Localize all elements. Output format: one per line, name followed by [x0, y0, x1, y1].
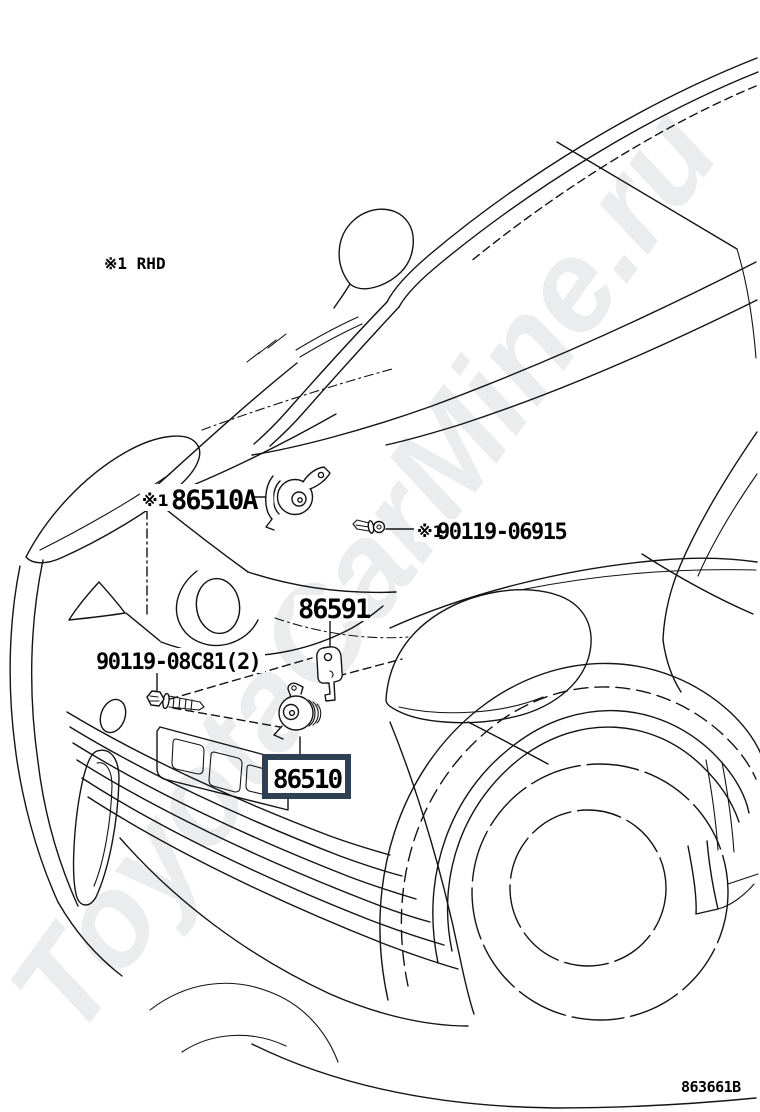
highlighted-part-86510[interactable]: 86510	[265, 757, 348, 796]
label-90119-06915[interactable]: 90119-06915	[437, 520, 566, 545]
label-86510[interactable]: 86510	[273, 765, 343, 795]
watermark-text: ToyotaCarMine.ru	[0, 82, 745, 1058]
drawing-code: 863661B	[681, 1078, 741, 1096]
label-86591[interactable]: 86591	[298, 594, 370, 625]
right-door-lines	[642, 432, 757, 692]
side-mirror	[334, 209, 413, 308]
label-86510a-prefix: ※1	[142, 491, 169, 510]
front-wheel-and-fender	[380, 663, 760, 1020]
label-86510a[interactable]: 86510A	[171, 485, 258, 516]
label-90119-08c81[interactable]: 90119-08C81(2)	[96, 650, 260, 675]
wheel-rim-outline	[510, 810, 666, 966]
cowl-wiper-lines	[202, 317, 392, 430]
footnote-rhd: ※1 RHD	[104, 254, 166, 273]
watermark: ToyotaCarMine.ru	[0, 82, 745, 1058]
parts-diagram-canvas: ToyotaCarMine.ru	[0, 0, 760, 1112]
left-fog-lamp	[96, 696, 130, 736]
